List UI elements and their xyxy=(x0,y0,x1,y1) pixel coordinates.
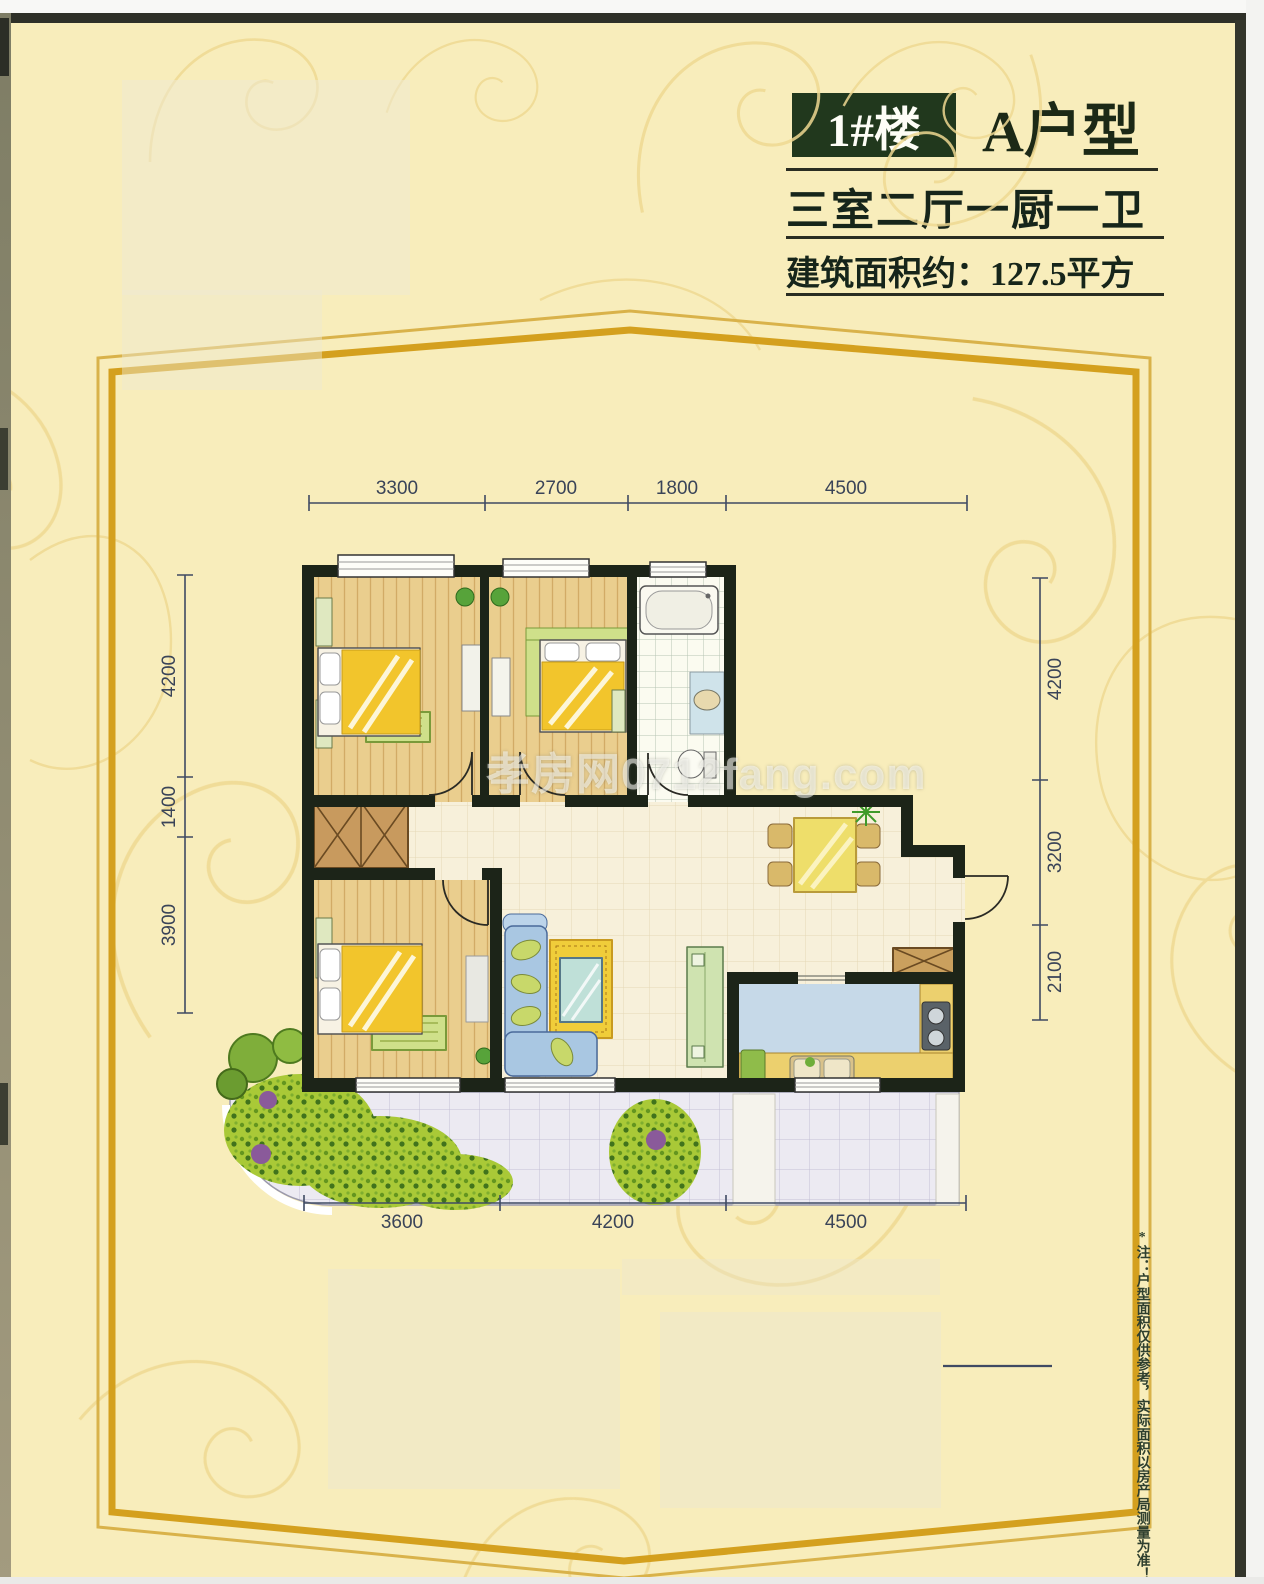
scan-edge-right-white xyxy=(1246,0,1264,1584)
title-divider-3 xyxy=(786,293,1164,296)
title-divider-1 xyxy=(786,168,1158,171)
bay-window xyxy=(338,555,454,577)
dim-right-2: 3200 xyxy=(1045,807,1067,897)
entry-door xyxy=(965,876,1008,919)
dim-top-3: 1800 xyxy=(632,478,722,500)
dim-top-2: 2700 xyxy=(511,478,601,500)
title-divider-2 xyxy=(786,236,1164,239)
dim-left-3: 3900 xyxy=(159,880,181,970)
dim-top-1: 3300 xyxy=(352,478,442,500)
scan-edge-right-dark xyxy=(1235,20,1246,1584)
site-watermark: 孝房网0712fang.com xyxy=(486,738,926,802)
storage-closet xyxy=(314,802,408,868)
dim-top-4: 4500 xyxy=(801,478,891,500)
dim-bottom-1: 3600 xyxy=(357,1212,447,1234)
scan-edge-left-strip xyxy=(0,13,11,1584)
dim-left-2: 1400 xyxy=(159,762,181,852)
scan-edge-top-white xyxy=(0,0,1264,13)
scan-edge-left-blob xyxy=(0,1083,8,1145)
dim-right-1: 4200 xyxy=(1045,634,1067,724)
dim-bottom-3: 4500 xyxy=(801,1212,891,1234)
brochure-page: 1#楼 A户型 三室二厅一厨一卫 建筑面积约：127.5平方 3300 2700… xyxy=(0,0,1264,1584)
scan-edge-bottom-white xyxy=(0,1577,1264,1584)
scan-edge-left-blob xyxy=(0,428,8,490)
dim-left-1: 4200 xyxy=(159,631,181,721)
terrace-divider xyxy=(733,1094,775,1205)
scan-edge-top-dark xyxy=(0,13,1264,23)
planter-box xyxy=(936,1094,959,1205)
dim-bottom-2: 4200 xyxy=(568,1212,658,1234)
dim-right-3: 2100 xyxy=(1045,927,1067,1017)
scan-edge-left-blob xyxy=(0,18,9,76)
disclaimer-footnote: *注：户型面积仅供参考，实际面积以房产局测量为准！ xyxy=(1132,1230,1152,1584)
